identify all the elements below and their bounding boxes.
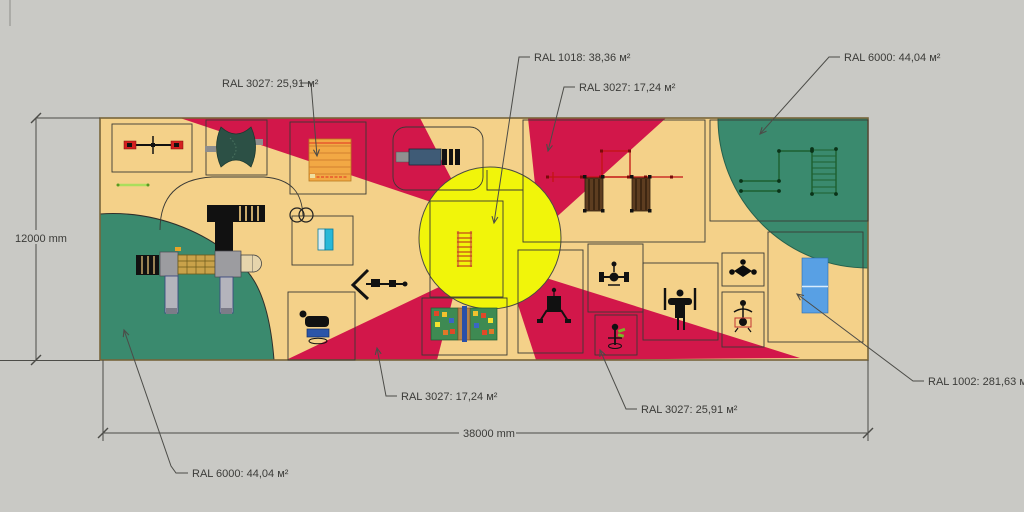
area-label-topleft: RAL 3027: 25,91 м² <box>222 78 319 90</box>
small-bench-icon <box>117 184 150 187</box>
area-label-right: RAL 1002: 281,63 м² <box>928 376 1024 388</box>
slide-icon <box>220 277 233 313</box>
panel-icon <box>318 229 333 250</box>
playground-plan-drawing: 12000 mm 38000 mm RAL 3027: 25,91 м² RAL… <box>0 0 1024 512</box>
plan-canvas: 12000 mm 38000 mm RAL 3027: 25,91 м² RAL… <box>0 0 1024 512</box>
area-label-topcenterright: RAL 3027: 17,24 м² <box>579 82 676 94</box>
game-tables-icon <box>431 306 497 342</box>
area-label-topright: RAL 6000: 44,04 м² <box>844 52 941 64</box>
area-label-bottomcenterright: RAL 3027: 25,91 м² <box>641 404 738 416</box>
width-dimension-label: 38000 mm <box>463 428 515 440</box>
table-tennis-icon <box>802 258 828 313</box>
area-label-topcenter: RAL 1018: 38,36 м² <box>534 52 631 64</box>
slide-icon <box>165 276 178 313</box>
zone-ral1018-circle <box>419 167 561 309</box>
picnic-table-icon <box>309 139 351 181</box>
area-label-bottomleft: RAL 6000: 44,04 м² <box>192 468 289 480</box>
area-label-bottomcenterleft: RAL 3027: 17,24 м² <box>401 391 498 403</box>
height-dimension-label: 12000 mm <box>15 233 67 245</box>
